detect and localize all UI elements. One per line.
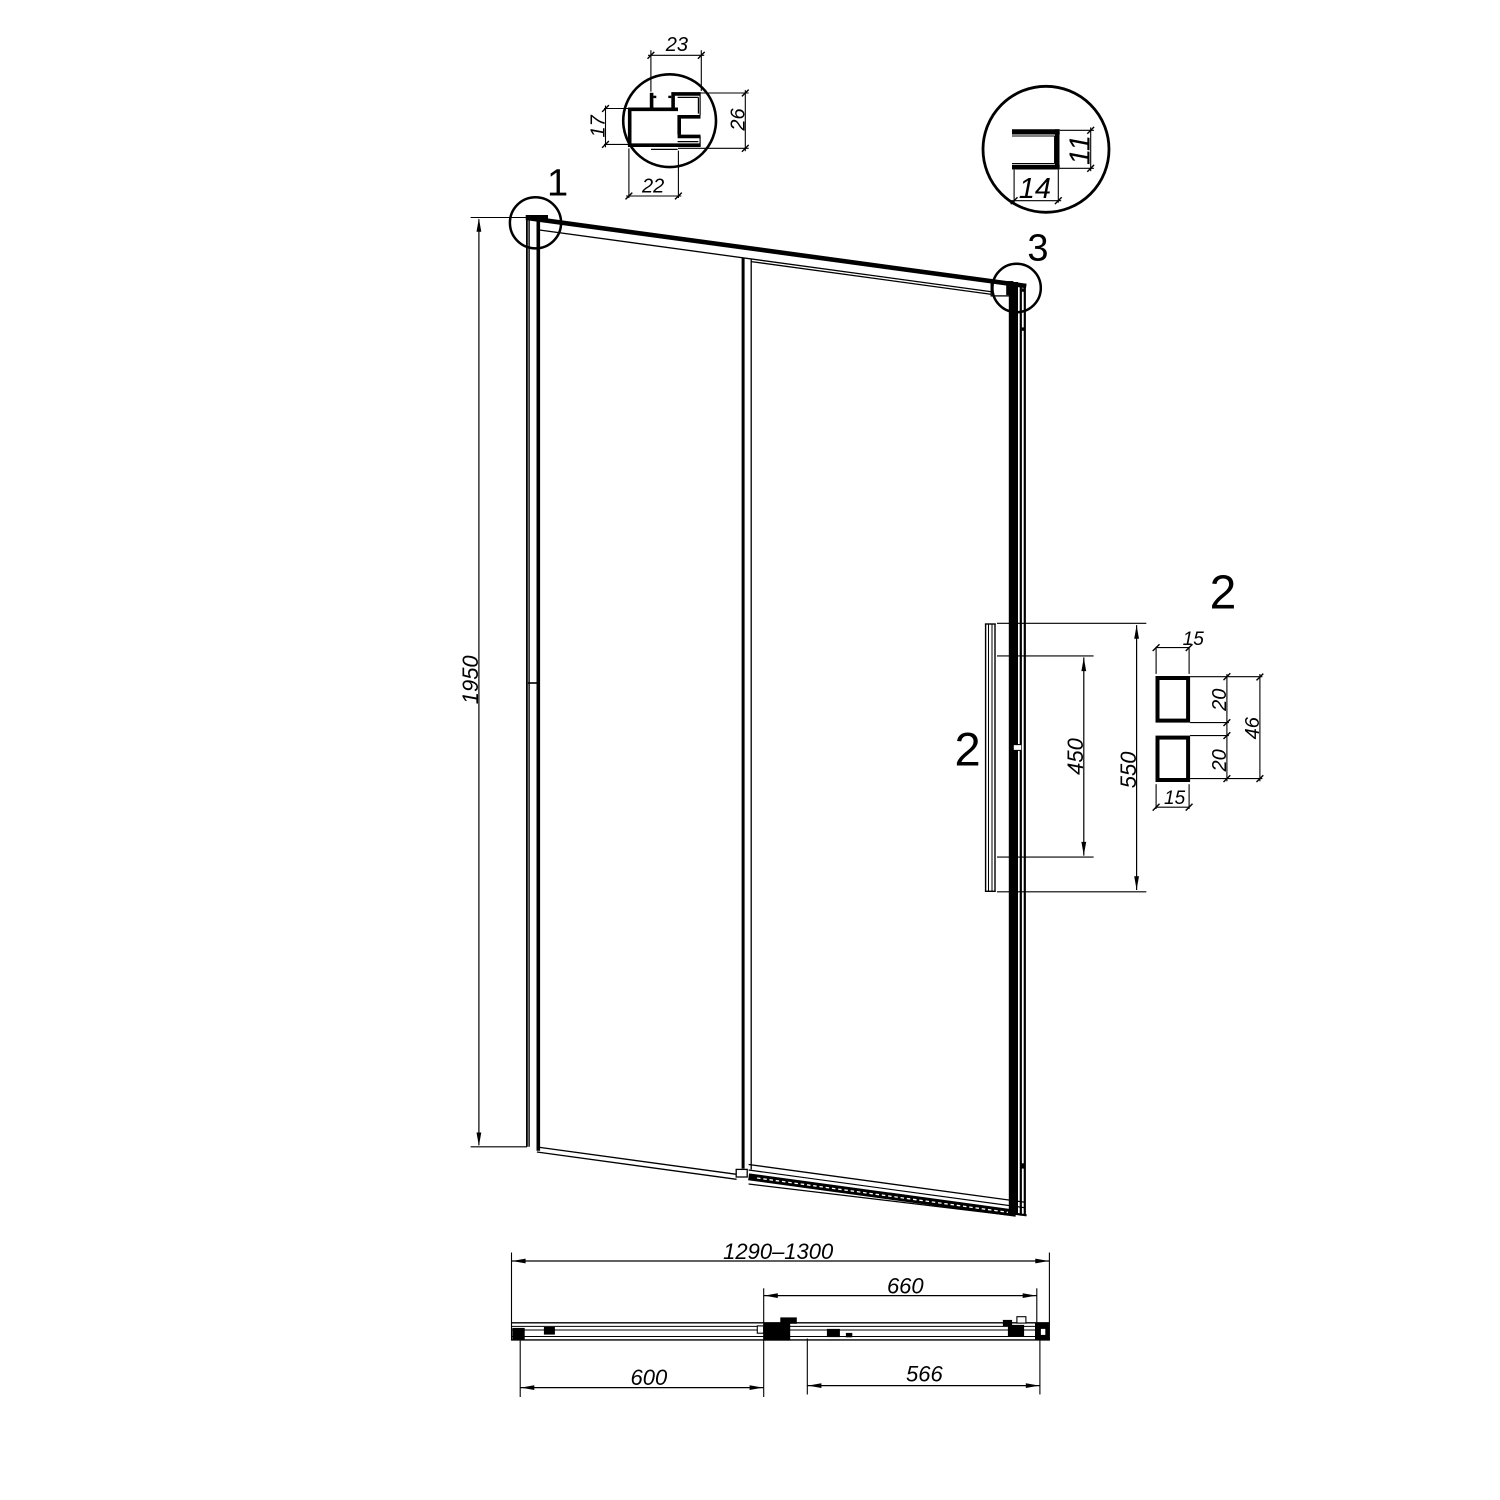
svg-text:20: 20: [1209, 749, 1231, 772]
svg-text:660: 660: [887, 1273, 924, 1298]
svg-text:23: 23: [665, 34, 688, 56]
svg-text:1290–1300: 1290–1300: [723, 1239, 834, 1264]
svg-text:600: 600: [631, 1365, 668, 1390]
svg-text:11: 11: [1065, 135, 1097, 165]
svg-text:17: 17: [588, 114, 610, 137]
svg-text:20: 20: [1209, 689, 1231, 712]
svg-text:46: 46: [1242, 716, 1264, 739]
svg-text:26: 26: [727, 108, 749, 132]
svg-text:566: 566: [906, 1362, 943, 1387]
svg-text:3: 3: [1027, 227, 1048, 269]
svg-text:1: 1: [547, 162, 568, 204]
svg-text:15: 15: [1183, 629, 1205, 650]
svg-text:14: 14: [1019, 173, 1051, 205]
svg-text:22: 22: [641, 175, 664, 197]
svg-text:2: 2: [1210, 567, 1237, 620]
svg-text:2: 2: [955, 723, 981, 776]
svg-text:15: 15: [1164, 788, 1186, 809]
svg-text:1950: 1950: [458, 655, 483, 705]
svg-text:550: 550: [1116, 751, 1141, 788]
svg-text:450: 450: [1063, 737, 1088, 774]
